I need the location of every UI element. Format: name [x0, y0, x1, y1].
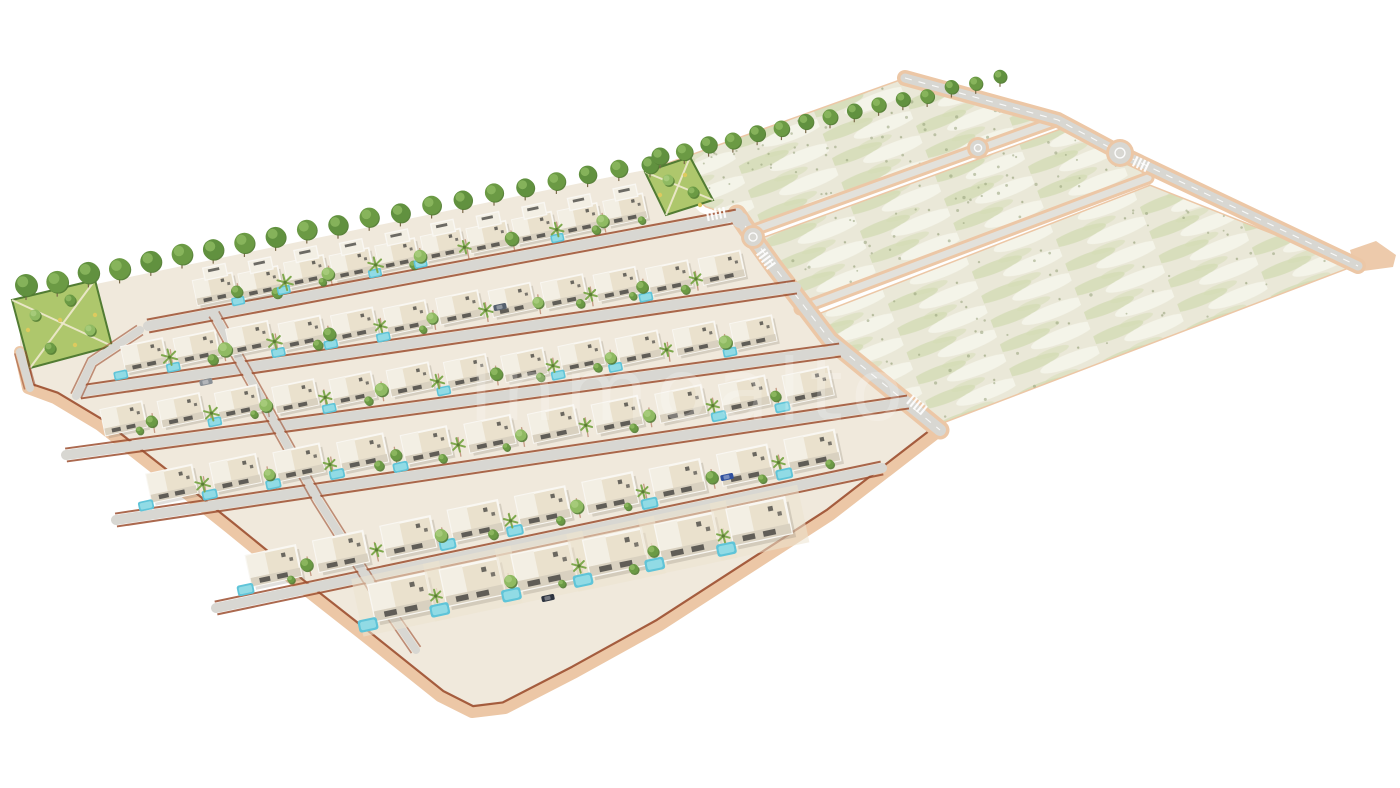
site-plan-svg: Inmoalto [0, 0, 1400, 788]
watermark-text: Inmoalto [468, 341, 911, 441]
aerial-site-render: Inmoalto [0, 0, 1400, 788]
